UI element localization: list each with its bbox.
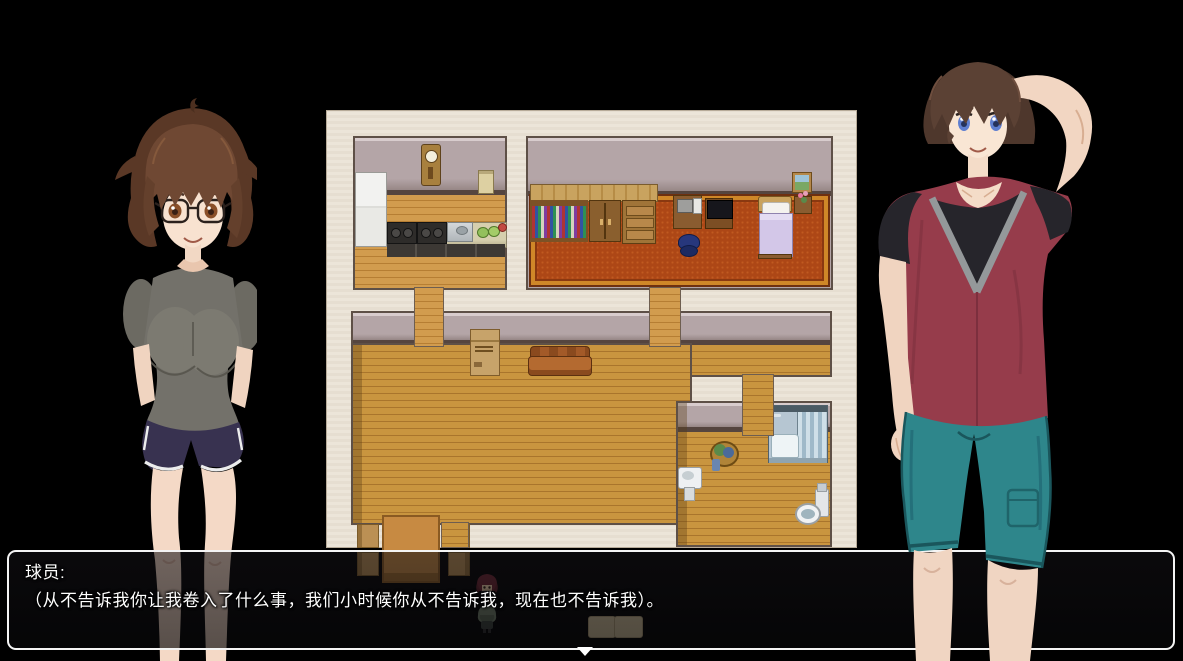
living-dining-floor — [353, 345, 690, 523]
corridor-bathroom — [743, 375, 773, 435]
corridor-exit — [442, 523, 468, 547]
wardrobe — [589, 200, 621, 242]
bedroom-room — [528, 138, 831, 288]
fridge — [355, 172, 387, 247]
corridor-kitchen — [415, 288, 443, 346]
continue-indicator-icon[interactable] — [577, 647, 593, 656]
bookshelf — [530, 200, 588, 242]
stove-right — [417, 222, 447, 244]
office-chair — [677, 233, 699, 258]
laundry-basket — [710, 437, 739, 470]
bathroom-sink — [678, 465, 702, 500]
cardboard-box — [470, 329, 500, 376]
flower-table — [794, 196, 812, 214]
male-shorts — [902, 412, 1051, 568]
vegetables — [475, 223, 503, 241]
male-character-bust — [862, 40, 1120, 661]
bed — [758, 196, 792, 258]
computer-desk — [673, 195, 702, 229]
kitchen-room — [355, 138, 505, 288]
corridor-bedroom — [650, 288, 680, 346]
kitchen-cabinets — [387, 244, 505, 257]
wall-clock — [421, 144, 441, 186]
dresser — [622, 200, 656, 244]
male-legs — [913, 548, 1038, 661]
wall-poster — [478, 170, 494, 194]
female-shirt — [123, 259, 257, 431]
shower-bath — [768, 405, 828, 463]
sofa — [528, 346, 590, 376]
toilet — [795, 489, 828, 533]
tv-stand — [705, 198, 733, 229]
game-screen: 球员: （从不告诉我你让我卷入了什么事，我们小时候你从不告诉我，现在也不告诉我）… — [0, 0, 1183, 661]
kitchen-sink — [447, 222, 473, 242]
stove-left — [387, 222, 417, 244]
chair — [357, 524, 379, 548]
house-map — [327, 111, 856, 547]
wall-painting — [792, 172, 812, 193]
